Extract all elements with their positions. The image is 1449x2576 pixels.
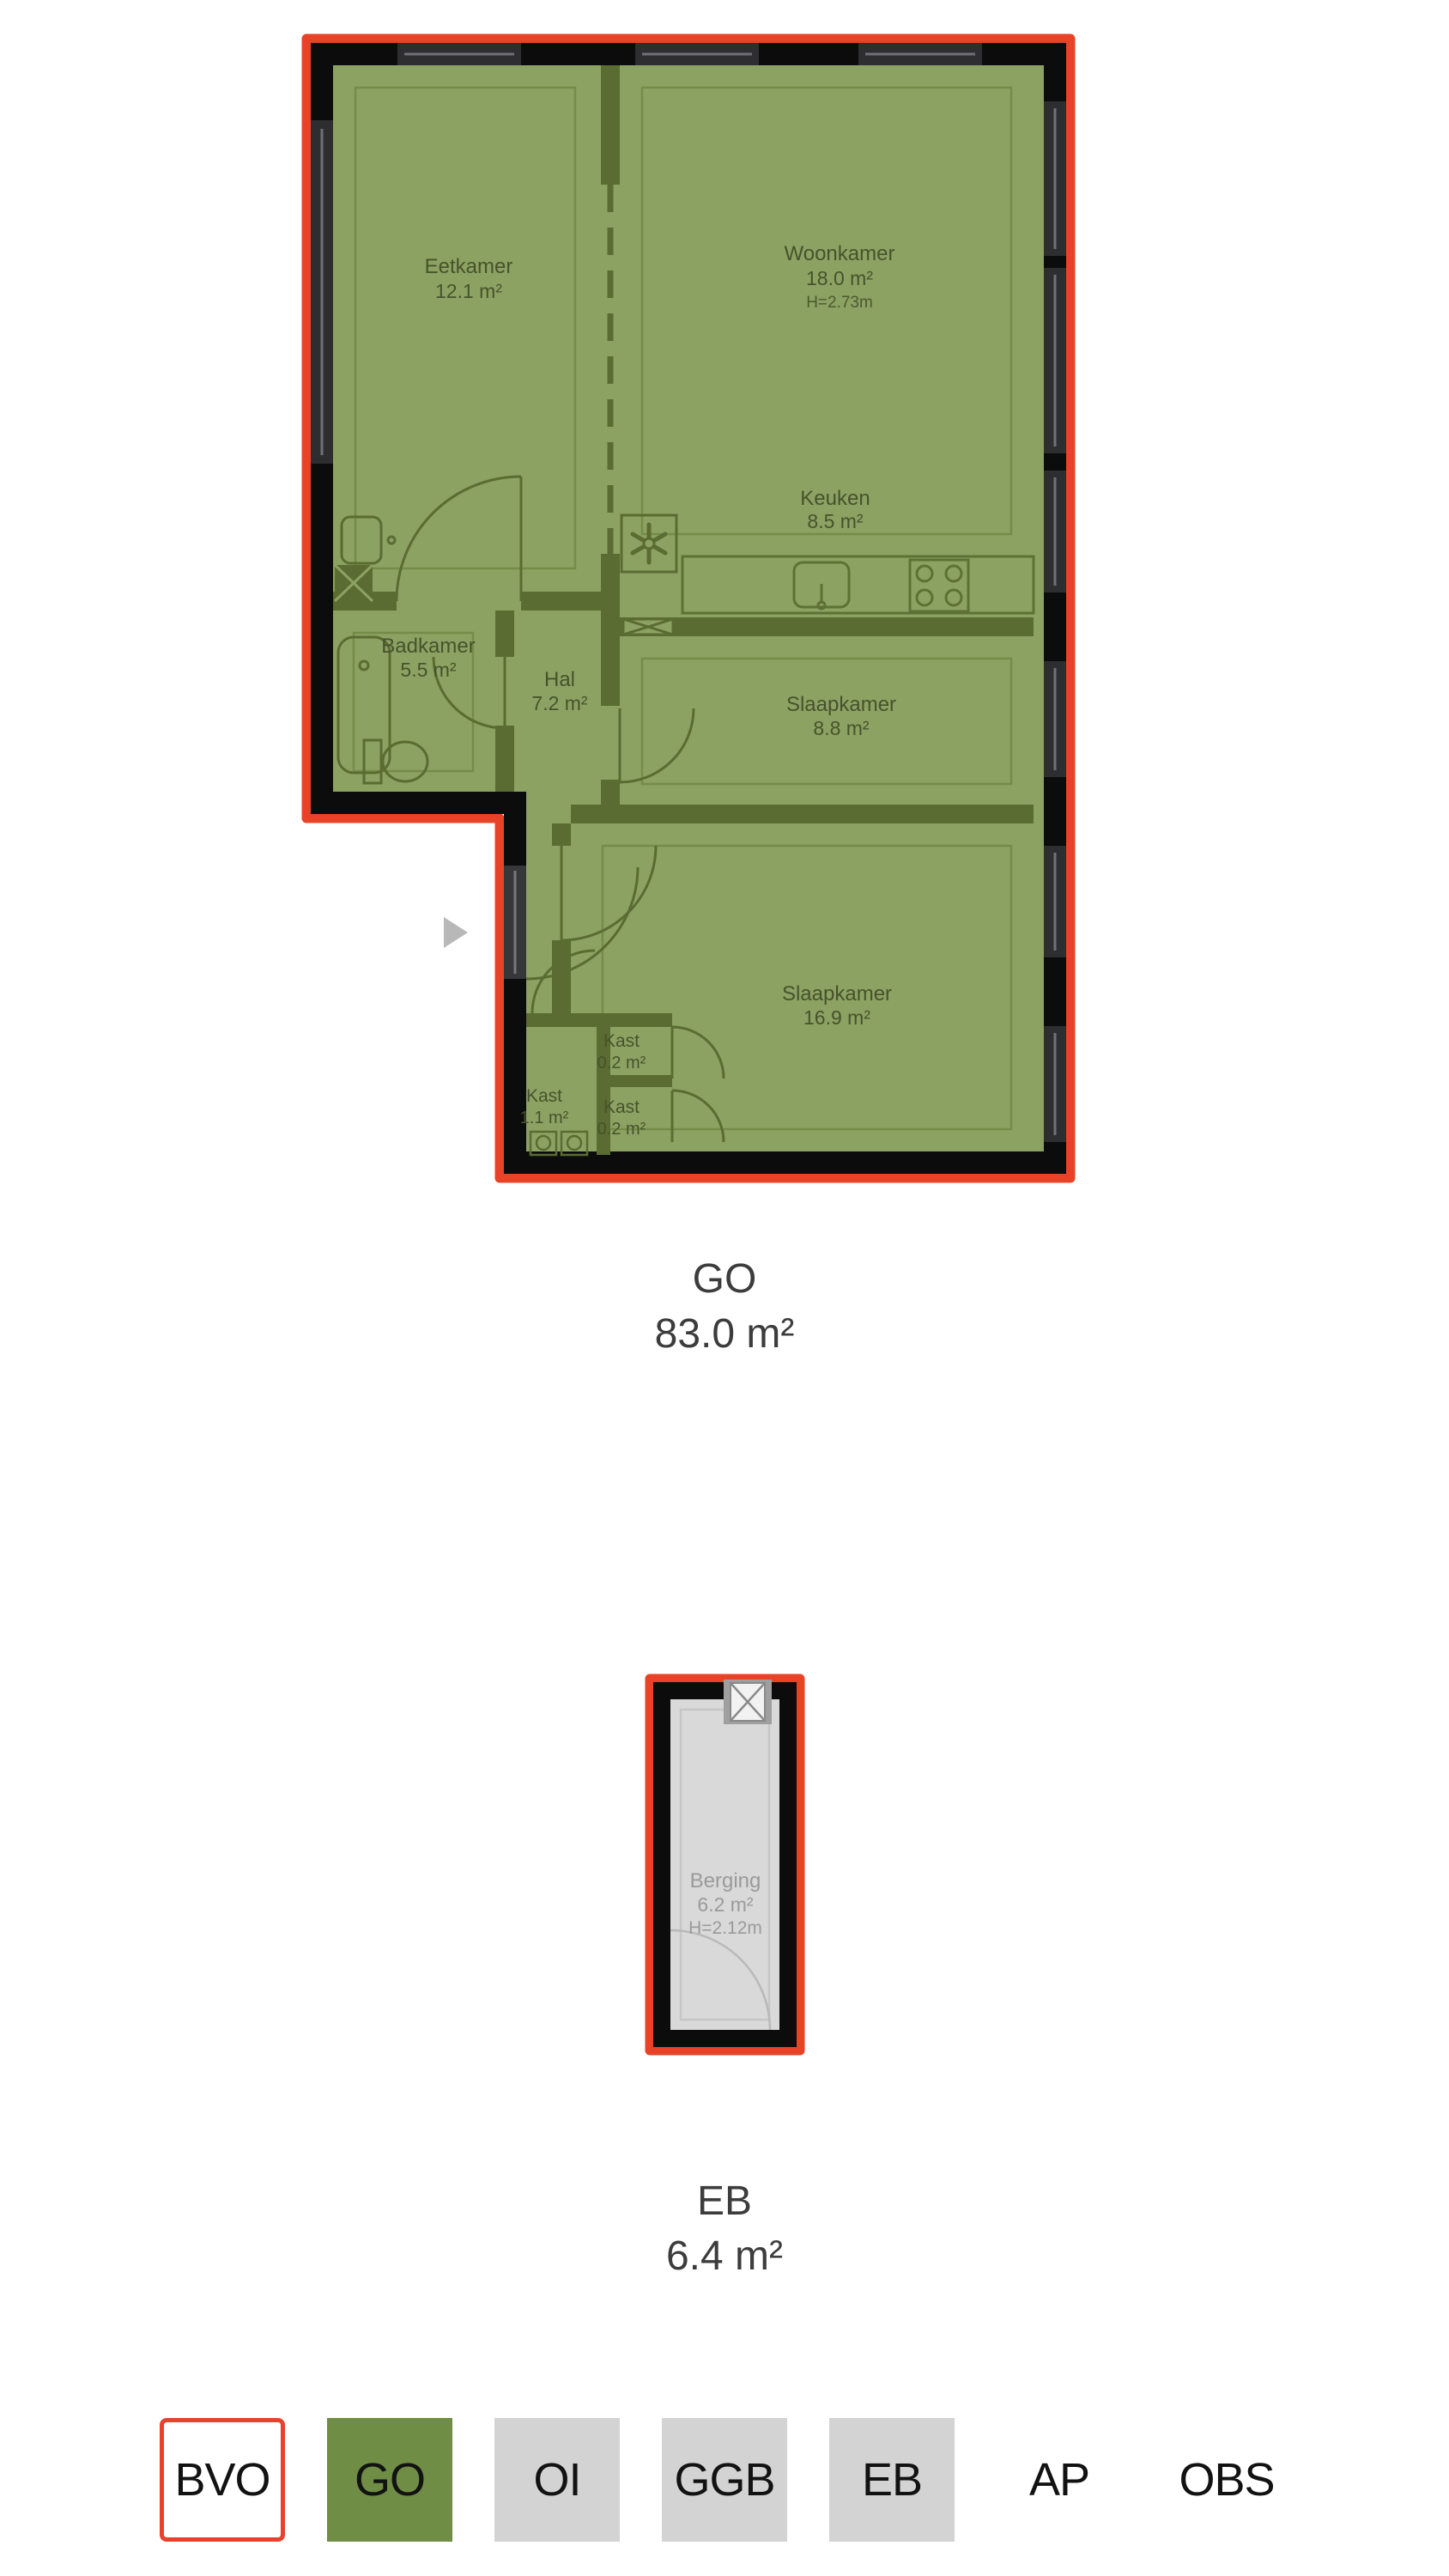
room-label: 0.2 m²: [597, 1120, 646, 1139]
legend-item-oi[interactable]: OI: [494, 2418, 620, 2542]
room-label: H=2.12m: [688, 1918, 762, 1938]
room-label: 6.2 m²: [697, 1893, 754, 1916]
room-label: 16.9 m²: [803, 1006, 870, 1029]
go-caption-code: GO: [0, 1252, 1449, 1307]
eb-caption: EB 6.4 m²: [0, 2174, 1449, 2284]
legend-bar: BVO GO OI GGB EB AP OBS: [0, 2418, 1449, 2542]
room-label: 8.8 m²: [813, 717, 870, 739]
eb-room-labels: Berging 6.2 m² H=2.12m: [688, 1869, 762, 1938]
room-label: Hal: [544, 668, 575, 691]
room-label: Slaapkamer: [786, 693, 896, 716]
legend-item-ggb[interactable]: GGB: [662, 2418, 787, 2542]
room-label: 5.5 m²: [400, 659, 457, 681]
room-label: Keuken: [800, 487, 870, 510]
eb-caption-area: 6.4 m²: [0, 2229, 1449, 2284]
room-label: Kast: [526, 1086, 562, 1106]
room-label: Slaapkamer: [782, 982, 892, 1005]
room-label: 7.2 m²: [531, 692, 588, 714]
room-label: Kast: [603, 1031, 640, 1051]
legend-item-go[interactable]: GO: [327, 2418, 452, 2542]
room-label: Kast: [603, 1097, 640, 1117]
go-caption-area: 83.0 m²: [0, 1307, 1449, 1362]
room-label: Badkamer: [381, 635, 475, 658]
go-walls: [322, 54, 1055, 1163]
legend-item-ap[interactable]: AP: [997, 2418, 1122, 2542]
room-label: 12.1 m²: [435, 280, 502, 302]
floorplan-page: { "floorplans": [ { "caption_code": "GO"…: [0, 0, 1449, 2576]
room-label: Berging: [690, 1869, 761, 1893]
eb-shaft-box: [724, 1680, 772, 1724]
room-label: Eetkamer: [425, 255, 513, 278]
room-label: 8.5 m²: [807, 510, 864, 532]
play-arrow-icon[interactable]: [444, 917, 468, 948]
room-label: H=2.73m: [806, 294, 873, 312]
legend-item-bvo[interactable]: BVO: [160, 2418, 285, 2542]
room-label: 0.2 m²: [597, 1054, 646, 1072]
room-label: 18.0 m²: [806, 267, 873, 289]
eb-floorplan: Berging 6.2 m² H=2.12m: [650, 1679, 800, 2050]
go-caption: GO 83.0 m²: [0, 1252, 1449, 1362]
go-floorplan: Eetkamer 12.1 m² Woonkamer 18.0 m² H=2.7…: [306, 39, 1070, 1178]
legend-item-obs[interactable]: OBS: [1164, 2418, 1289, 2542]
room-label: Woonkamer: [785, 242, 895, 265]
room-label: 1.1 m²: [520, 1109, 569, 1127]
eb-caption-code: EB: [0, 2174, 1449, 2229]
legend-item-eb[interactable]: EB: [829, 2418, 955, 2542]
